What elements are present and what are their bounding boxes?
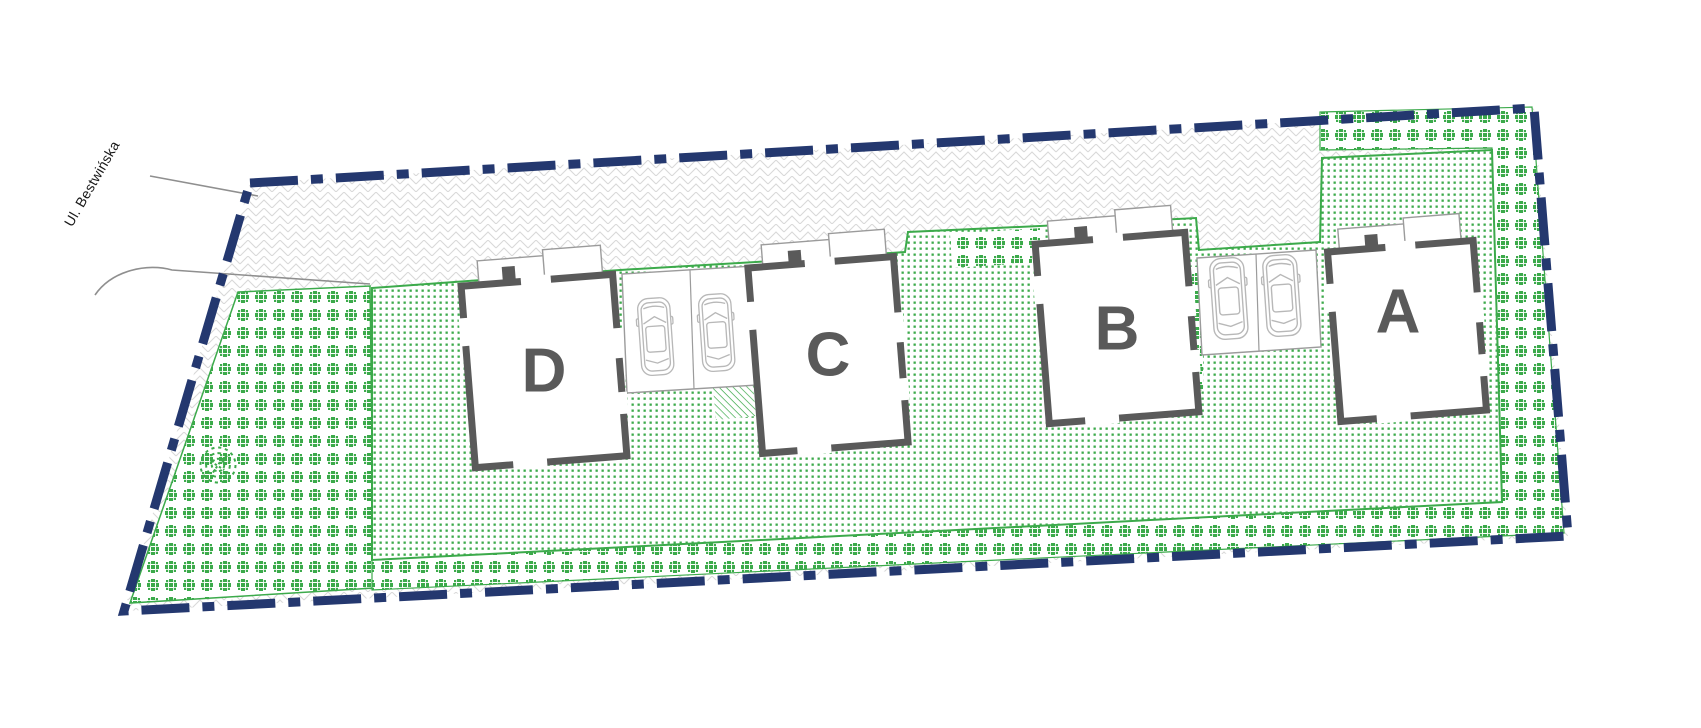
- parking-pad: [622, 266, 758, 393]
- site-plan: D C B: [0, 0, 1701, 728]
- west-planting-area: [130, 286, 374, 603]
- car-icon: [635, 297, 677, 376]
- building-d-label: D: [522, 337, 567, 406]
- building-b-label: B: [1095, 295, 1140, 364]
- street-name-label: Ul. Bestwińska: [61, 138, 123, 229]
- hedge-hatch-patch: [713, 384, 756, 420]
- car-icon: [696, 293, 738, 372]
- car-icon: [1260, 254, 1304, 337]
- site-plan-canvas: D C B: [0, 0, 1701, 728]
- road-edge-line: [150, 176, 258, 196]
- building-a-label: A: [1376, 278, 1421, 347]
- car-icon: [1207, 257, 1251, 340]
- planting-patch: [950, 228, 1044, 268]
- parking-pad: [1197, 250, 1321, 355]
- building-c-label: C: [806, 321, 851, 390]
